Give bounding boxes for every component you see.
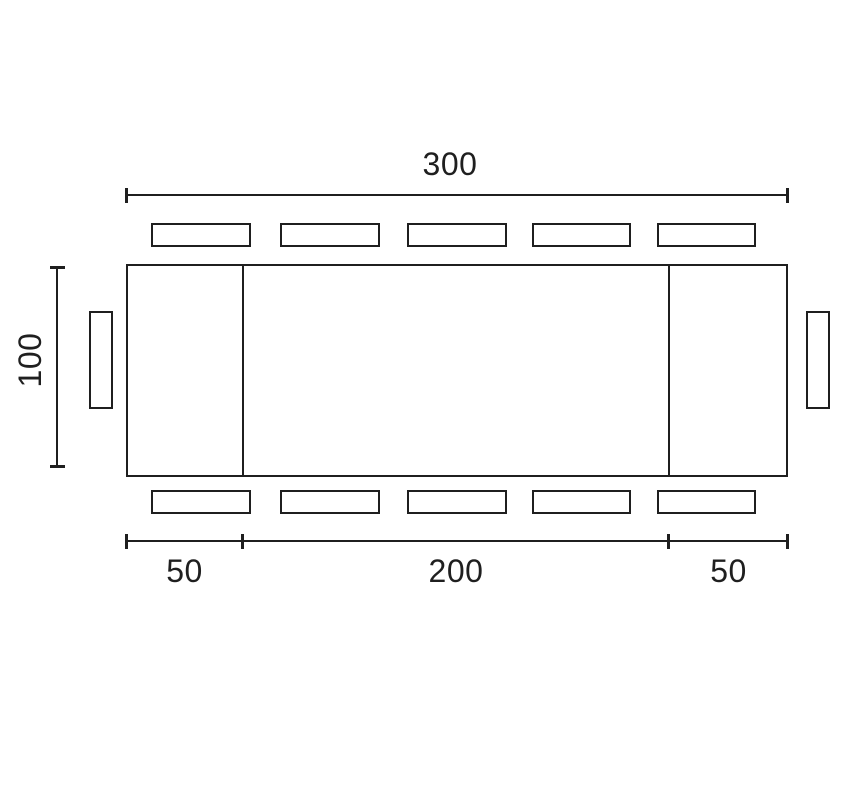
chair-top-2 [280, 223, 380, 247]
chair-top-5 [657, 223, 756, 247]
table-outline [126, 264, 788, 477]
dimension-label-total-length: 300 [126, 145, 774, 183]
dimension-line-sections [126, 540, 788, 542]
dimension-tick [125, 188, 128, 203]
dimension-tick [241, 534, 244, 549]
chair-top-3 [407, 223, 507, 247]
chair-bottom-4 [532, 490, 631, 514]
chair-top-1 [151, 223, 251, 247]
chair-bottom-2 [280, 490, 380, 514]
chair-left [89, 311, 113, 409]
dimension-label-right-leaf: 50 [669, 552, 788, 590]
chair-bottom-3 [407, 490, 507, 514]
dimension-label-depth: 100 [11, 333, 49, 388]
table-plan-diagram: 300 100 50 200 50 [0, 0, 857, 785]
table-leaf-divider-left [242, 264, 244, 477]
dimension-line-depth [56, 268, 58, 467]
dimension-tick [786, 188, 789, 203]
dimension-label-left-leaf: 50 [126, 552, 243, 590]
dimension-label-center-section: 200 [243, 552, 669, 590]
chair-right [806, 311, 830, 409]
chair-bottom-5 [657, 490, 756, 514]
dimension-tick [50, 465, 65, 468]
dimension-tick [667, 534, 670, 549]
dimension-tick [50, 266, 65, 269]
chair-bottom-1 [151, 490, 251, 514]
dimension-tick [125, 534, 128, 549]
chair-top-4 [532, 223, 631, 247]
table-leaf-divider-right [668, 264, 670, 477]
dimension-line-total-length [126, 194, 788, 196]
dimension-tick [786, 534, 789, 549]
